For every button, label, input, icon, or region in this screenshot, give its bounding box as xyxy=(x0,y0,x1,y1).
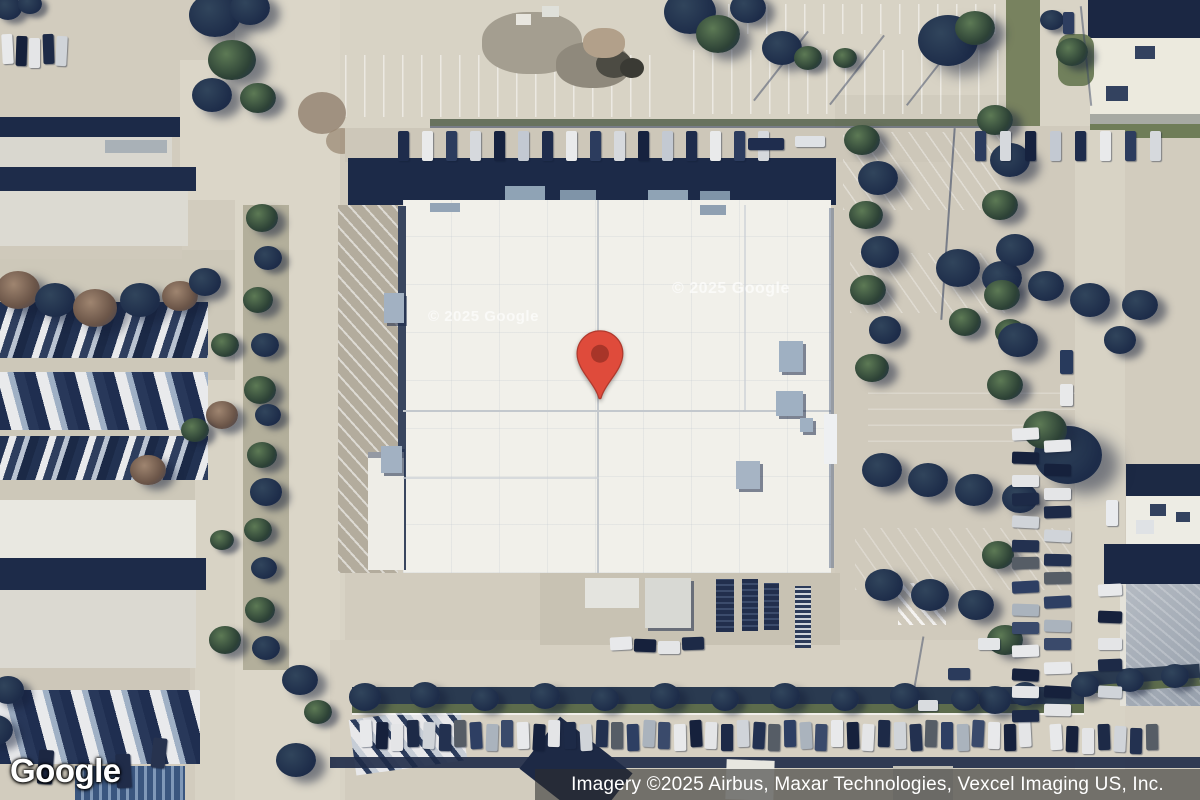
dock-apron xyxy=(0,246,182,259)
vehicle xyxy=(638,131,649,161)
vehicle xyxy=(1012,492,1039,505)
equipment xyxy=(516,14,531,25)
vehicle xyxy=(815,724,828,751)
warehouse-roof xyxy=(0,191,188,246)
vehicle xyxy=(422,131,433,161)
vehicle xyxy=(1098,638,1122,650)
vehicle xyxy=(831,720,843,747)
vehicle xyxy=(1150,131,1161,161)
vehicle xyxy=(975,131,986,161)
rooftop-unit xyxy=(1106,86,1128,101)
vehicle xyxy=(1012,645,1039,658)
attribution-text: Imagery ©2025 Airbus, Maxar Technologies… xyxy=(571,774,1164,796)
vehicle xyxy=(517,722,530,749)
vehicle xyxy=(407,720,420,747)
tree xyxy=(209,626,241,653)
vehicle xyxy=(956,724,969,751)
vehicle xyxy=(748,138,784,150)
tree xyxy=(865,569,903,601)
tree xyxy=(1122,290,1158,321)
vehicle xyxy=(768,724,780,751)
vehicle xyxy=(1113,726,1126,753)
tree xyxy=(862,453,902,487)
rooftop-unit xyxy=(1136,520,1154,534)
equipment-tower xyxy=(795,586,811,648)
rooftop-unit xyxy=(1150,504,1166,516)
tree xyxy=(849,201,883,230)
vehicle xyxy=(941,722,953,749)
vehicle xyxy=(566,131,577,161)
vehicle xyxy=(1044,685,1072,698)
vehicle xyxy=(518,131,529,161)
vehicle xyxy=(494,131,505,161)
vehicle xyxy=(1003,724,1015,751)
vehicle xyxy=(862,724,875,752)
vehicle xyxy=(1012,709,1039,721)
hvac-unit xyxy=(742,579,758,631)
vehicle xyxy=(1044,572,1071,584)
vehicle xyxy=(948,668,970,680)
vehicle xyxy=(548,720,560,747)
vehicle xyxy=(1012,686,1039,698)
vehicle xyxy=(398,131,409,161)
tree xyxy=(251,557,277,579)
rooftop-unit xyxy=(776,391,803,416)
tree xyxy=(282,665,318,696)
tree xyxy=(349,683,381,710)
vehicle xyxy=(674,724,686,751)
tree xyxy=(254,246,282,270)
vehicle xyxy=(988,722,1000,749)
vehicle xyxy=(391,724,403,751)
attribution-bar: Imagery ©2025 Airbus, Maxar Technologies… xyxy=(535,769,1200,800)
google-logo[interactable]: Google xyxy=(10,752,121,790)
imagery-watermark: © 2025 Google xyxy=(428,308,539,325)
trailer-row xyxy=(0,436,208,480)
vehicle xyxy=(1098,659,1122,672)
vehicle xyxy=(1049,724,1062,751)
vehicle xyxy=(1082,728,1094,754)
tree xyxy=(1040,10,1064,30)
rooftop-unit xyxy=(384,293,404,323)
vehicle xyxy=(1044,439,1072,452)
vehicle xyxy=(1044,554,1071,566)
tree xyxy=(869,316,901,343)
vehicle xyxy=(1012,668,1040,681)
vehicle xyxy=(55,36,68,67)
vehicle xyxy=(611,722,623,749)
roof-seam xyxy=(403,477,599,479)
tree xyxy=(252,636,280,660)
vehicle xyxy=(1012,427,1040,440)
tree xyxy=(304,700,332,724)
vehicle xyxy=(1060,384,1073,406)
tree xyxy=(998,323,1038,357)
tree xyxy=(861,236,899,268)
tree xyxy=(192,78,232,112)
vehicle xyxy=(1012,604,1039,617)
vehicle xyxy=(564,722,576,749)
tree xyxy=(908,463,948,497)
vehicle xyxy=(1044,704,1071,716)
tree xyxy=(130,455,166,486)
vehicle xyxy=(1,34,14,65)
vehicle xyxy=(375,722,388,749)
vehicle xyxy=(1044,488,1071,500)
vehicle xyxy=(662,131,673,161)
vehicle xyxy=(736,720,749,747)
vehicle xyxy=(799,722,812,750)
tree xyxy=(247,442,277,468)
vehicle xyxy=(1098,583,1123,596)
tree xyxy=(955,11,995,45)
vehicle xyxy=(1012,451,1039,464)
vehicle xyxy=(1075,131,1086,161)
tree xyxy=(189,268,221,295)
tree xyxy=(1028,271,1064,302)
tree xyxy=(210,530,234,550)
tree xyxy=(246,204,278,231)
grass-strip xyxy=(1006,0,1040,126)
vehicle xyxy=(1098,685,1123,698)
building-shadow xyxy=(1104,544,1200,584)
tree xyxy=(958,590,994,621)
tree xyxy=(911,579,949,611)
rooftop-unit xyxy=(800,418,813,432)
vehicle xyxy=(795,136,825,147)
satellite-map[interactable]: © 2025 Google © 2025 Google Google Image… xyxy=(0,0,1200,800)
vehicle xyxy=(658,641,680,654)
warehouse-roof-dark xyxy=(0,117,180,137)
building-roof-dark xyxy=(1088,0,1200,40)
rooftop-unit xyxy=(736,461,760,489)
vehicle xyxy=(1025,131,1036,161)
tree xyxy=(650,683,680,709)
tree xyxy=(243,287,273,313)
vehicle xyxy=(590,131,601,161)
building-edge xyxy=(1090,114,1200,124)
vehicle xyxy=(29,38,40,68)
vehicle xyxy=(909,724,922,752)
vehicle xyxy=(1044,595,1072,608)
tree xyxy=(711,687,739,711)
roof-seam xyxy=(403,410,831,412)
hvac-unit xyxy=(716,579,734,632)
tree xyxy=(206,401,238,428)
tree xyxy=(987,370,1023,401)
vehicle xyxy=(501,720,513,747)
roof-edge xyxy=(829,208,834,568)
tree xyxy=(890,683,920,709)
trailer-row xyxy=(0,372,208,430)
vehicle xyxy=(734,131,745,161)
vehicle xyxy=(1044,506,1071,519)
vehicle xyxy=(642,720,655,748)
tree xyxy=(936,249,980,286)
vehicle xyxy=(446,131,457,161)
outbuilding xyxy=(585,578,639,608)
rooftop-unit xyxy=(1176,512,1190,522)
rooftop-unit xyxy=(430,203,460,212)
tree xyxy=(181,418,209,442)
vehicle xyxy=(1050,131,1061,161)
tree xyxy=(1071,673,1099,697)
tree xyxy=(245,597,275,623)
vehicle xyxy=(925,720,938,747)
warehouse-roof-dark xyxy=(0,558,206,590)
fence-hedge xyxy=(430,119,1010,126)
vehicle xyxy=(1130,728,1142,754)
tree xyxy=(833,48,857,68)
tree xyxy=(1056,38,1088,65)
vehicle xyxy=(972,720,985,748)
vehicle xyxy=(595,720,608,747)
vehicle xyxy=(438,724,450,751)
tree xyxy=(1104,326,1136,353)
tree xyxy=(120,283,160,317)
tree xyxy=(530,683,560,709)
vehicle xyxy=(470,131,481,161)
tree xyxy=(35,283,75,317)
vehicle xyxy=(752,722,765,750)
tree xyxy=(696,15,740,52)
tree xyxy=(955,474,993,506)
tree xyxy=(794,46,822,70)
vehicle xyxy=(1098,611,1122,624)
tree xyxy=(211,333,239,357)
vehicle xyxy=(610,636,633,650)
vehicle xyxy=(634,639,656,653)
vehicle xyxy=(469,722,482,750)
vehicle xyxy=(422,722,435,750)
vehicle xyxy=(1125,131,1136,161)
tree xyxy=(844,125,880,156)
vehicle xyxy=(689,720,702,748)
vehicle xyxy=(1060,350,1073,374)
vehicle xyxy=(1106,500,1118,526)
warehouse-roof xyxy=(0,500,196,558)
vehicle xyxy=(918,700,938,711)
vehicle xyxy=(579,724,592,752)
tree xyxy=(276,743,316,777)
tree xyxy=(996,234,1034,266)
vehicle xyxy=(1012,475,1039,487)
vehicle xyxy=(686,131,697,161)
vehicle xyxy=(1100,131,1111,161)
tree xyxy=(244,376,276,403)
imagery-watermark: © 2025 Google xyxy=(672,280,790,298)
vehicle xyxy=(658,722,670,749)
vehicle xyxy=(1044,620,1071,633)
debris xyxy=(620,58,644,78)
tree xyxy=(410,682,440,708)
tree xyxy=(250,478,282,505)
tree xyxy=(208,40,256,81)
vehicle xyxy=(1044,464,1071,477)
warehouse-roof xyxy=(0,590,196,668)
tree xyxy=(984,280,1020,311)
tree xyxy=(1161,664,1189,688)
rooftop-unit xyxy=(779,341,803,372)
vehicle xyxy=(359,720,372,748)
vehicle xyxy=(1066,726,1079,752)
vehicle xyxy=(1044,529,1072,542)
tree xyxy=(855,354,889,383)
hvac-unit xyxy=(764,583,779,630)
tree xyxy=(244,518,272,542)
tree xyxy=(831,687,859,711)
vehicle xyxy=(978,638,1000,650)
vehicle xyxy=(42,34,54,64)
map-pin-icon[interactable] xyxy=(575,327,625,403)
tree xyxy=(471,687,499,711)
curb-line xyxy=(352,713,1084,715)
vehicle xyxy=(1012,515,1040,528)
tree xyxy=(1070,283,1110,317)
dirt-pile xyxy=(583,28,625,58)
vehicle xyxy=(614,131,625,161)
rooftop-unit xyxy=(381,446,402,473)
roof-seam xyxy=(744,205,746,411)
rooftop-unit xyxy=(1135,46,1155,59)
tree xyxy=(951,687,979,711)
vehicle xyxy=(1000,131,1011,161)
vehicle xyxy=(705,722,718,749)
tree xyxy=(858,161,898,195)
vehicle xyxy=(878,720,890,747)
vehicle xyxy=(1044,638,1071,650)
parked-trailer xyxy=(824,414,837,464)
vehicle xyxy=(626,724,639,751)
tree xyxy=(251,333,279,357)
tree xyxy=(850,275,886,306)
vehicle xyxy=(15,36,27,66)
tree xyxy=(591,687,619,711)
vehicle xyxy=(1012,622,1039,634)
tree xyxy=(982,541,1014,568)
vehicle xyxy=(1019,720,1032,748)
outbuilding xyxy=(645,578,691,628)
tree xyxy=(770,683,800,709)
vehicle xyxy=(784,720,796,747)
vehicle xyxy=(1098,724,1111,750)
vehicle xyxy=(1012,557,1039,569)
warehouse-roof-dark xyxy=(0,167,196,191)
vehicle xyxy=(721,724,733,751)
vehicle xyxy=(485,724,498,751)
vehicle xyxy=(1012,539,1039,551)
tree xyxy=(979,686,1011,713)
vehicle xyxy=(1063,12,1074,34)
roof-vents xyxy=(105,140,167,153)
tree xyxy=(255,404,281,426)
equipment xyxy=(542,6,559,17)
vehicle xyxy=(454,720,466,747)
tree xyxy=(982,190,1018,221)
rooftop-unit xyxy=(700,205,726,215)
vehicle xyxy=(846,722,859,749)
building-roof-dark xyxy=(1126,464,1200,496)
tree xyxy=(73,289,117,326)
vehicle xyxy=(682,637,704,651)
vehicle xyxy=(1146,724,1158,750)
vehicle xyxy=(542,131,553,161)
vehicle xyxy=(532,724,545,752)
tree xyxy=(240,83,276,114)
dock-canopy xyxy=(505,186,545,200)
tree xyxy=(0,271,40,308)
vehicle xyxy=(1012,580,1040,593)
vehicle xyxy=(710,131,721,161)
dock-apron xyxy=(0,668,190,690)
tree xyxy=(949,308,981,335)
vehicle xyxy=(894,722,906,749)
tree xyxy=(18,0,42,14)
vehicle xyxy=(1044,662,1071,675)
